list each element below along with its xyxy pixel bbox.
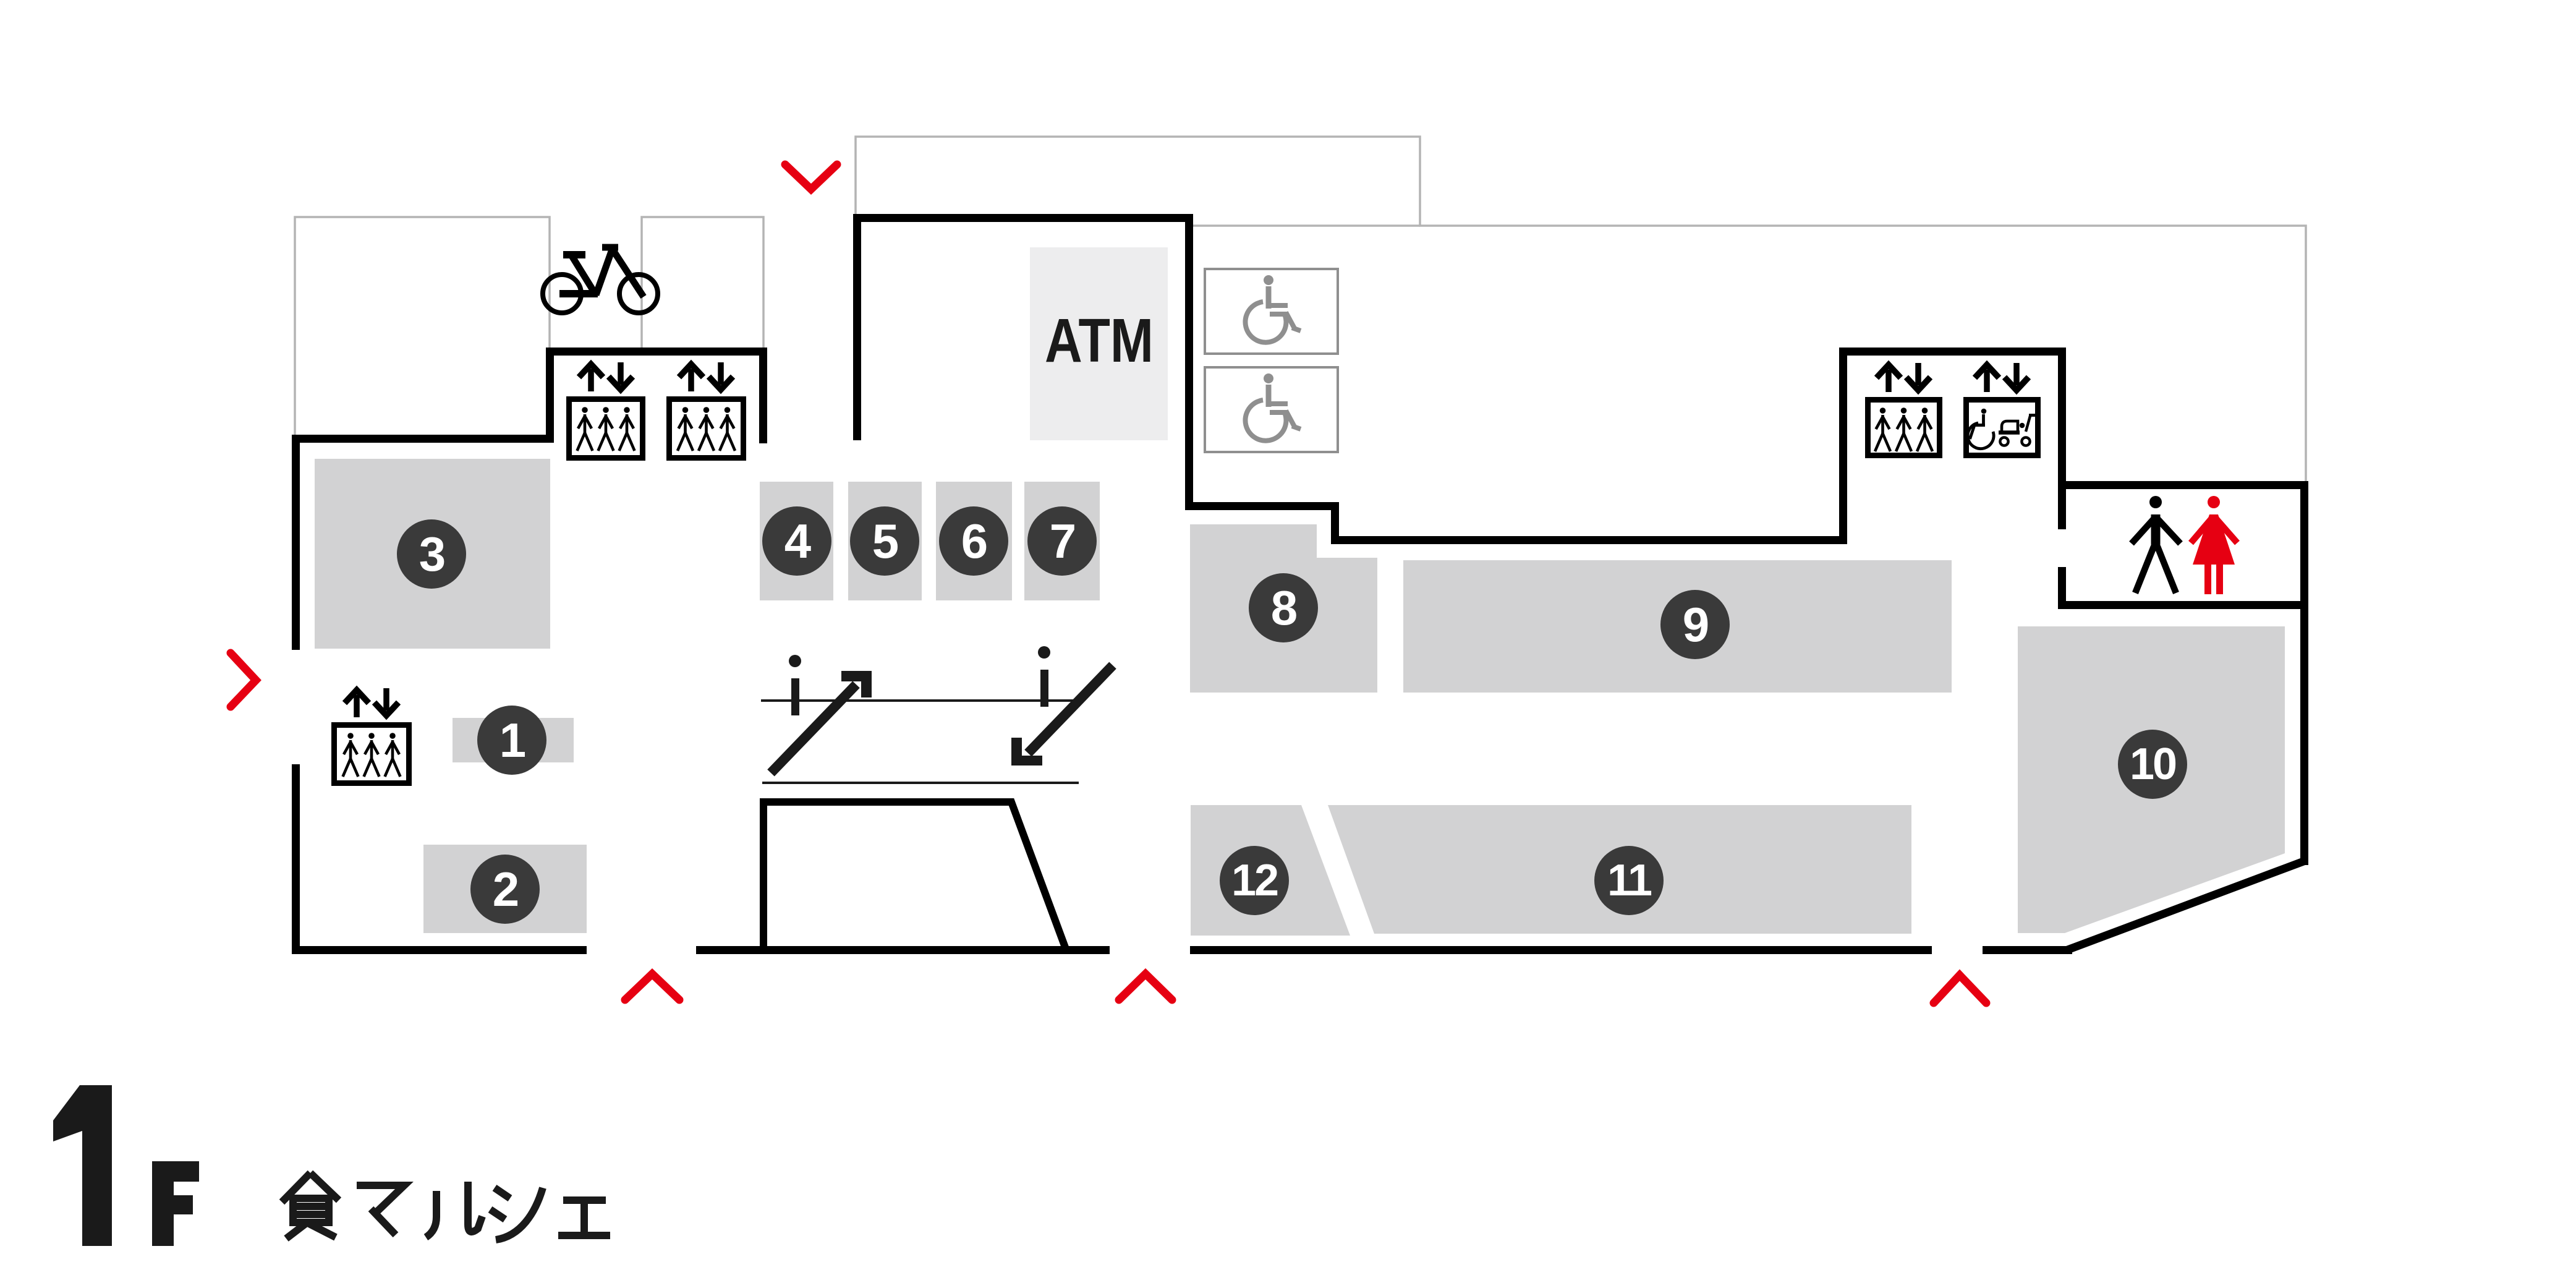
svg-text:3: 3 xyxy=(419,527,444,581)
svg-text:10: 10 xyxy=(2130,740,2176,789)
svg-text:4: 4 xyxy=(784,514,811,568)
svg-text:2: 2 xyxy=(493,862,518,916)
svg-text:6: 6 xyxy=(961,514,987,568)
svg-text:7: 7 xyxy=(1050,514,1074,568)
svg-text:ATM: ATM xyxy=(1045,306,1154,375)
svg-text:12: 12 xyxy=(1231,856,1278,905)
svg-text:8: 8 xyxy=(1271,581,1296,635)
svg-text:5: 5 xyxy=(872,514,898,568)
svg-text:9: 9 xyxy=(1683,597,1708,652)
svg-text:11: 11 xyxy=(1607,856,1652,905)
svg-text:1: 1 xyxy=(499,713,525,767)
